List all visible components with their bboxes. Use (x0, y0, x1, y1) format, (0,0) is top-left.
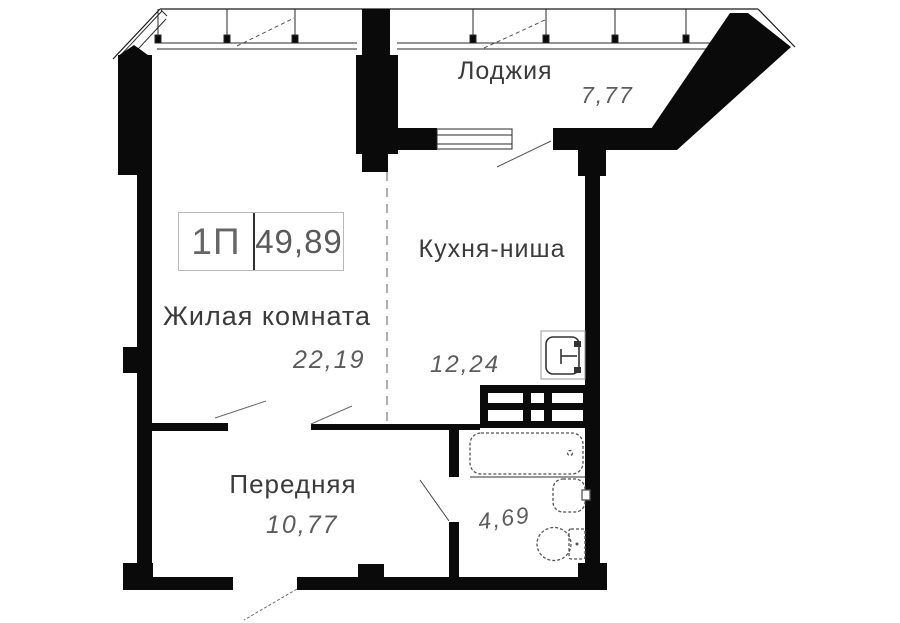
kitchen-sink (541, 331, 585, 379)
vent-shaft (480, 385, 590, 428)
exterior-outline (113, 9, 795, 59)
apartment-type-label: 1П (179, 213, 253, 270)
room-area-hall: 10,77 (266, 511, 339, 540)
apartment-title-box: 1П 49,89 (178, 212, 344, 271)
toilet (537, 528, 585, 561)
floor-plan-drawing (0, 0, 900, 623)
room-area-living: 22,19 (293, 346, 366, 375)
bathtub (470, 433, 585, 477)
room-label-kitchen: Кухня-ниша (408, 235, 576, 264)
washbasin (553, 479, 590, 512)
room-label-hall: Передняя (226, 469, 360, 500)
room-area-kitchen: 12,24 (430, 351, 500, 379)
balcony-door-leader (497, 141, 551, 167)
floor-plan: 1П 49,89 Лоджия 7,77 Жилая комната 22,19… (0, 0, 900, 623)
room-label-loggia: Лоджия (458, 57, 553, 86)
loggia-window (437, 129, 512, 149)
room-area-loggia: 7,77 (581, 82, 634, 109)
walls (118, 9, 791, 590)
room-label-living: Жилая комната (163, 301, 370, 332)
facade-window-band (157, 43, 747, 49)
apartment-total-area: 49,89 (255, 213, 343, 270)
window-mullion-ticks (155, 9, 689, 43)
